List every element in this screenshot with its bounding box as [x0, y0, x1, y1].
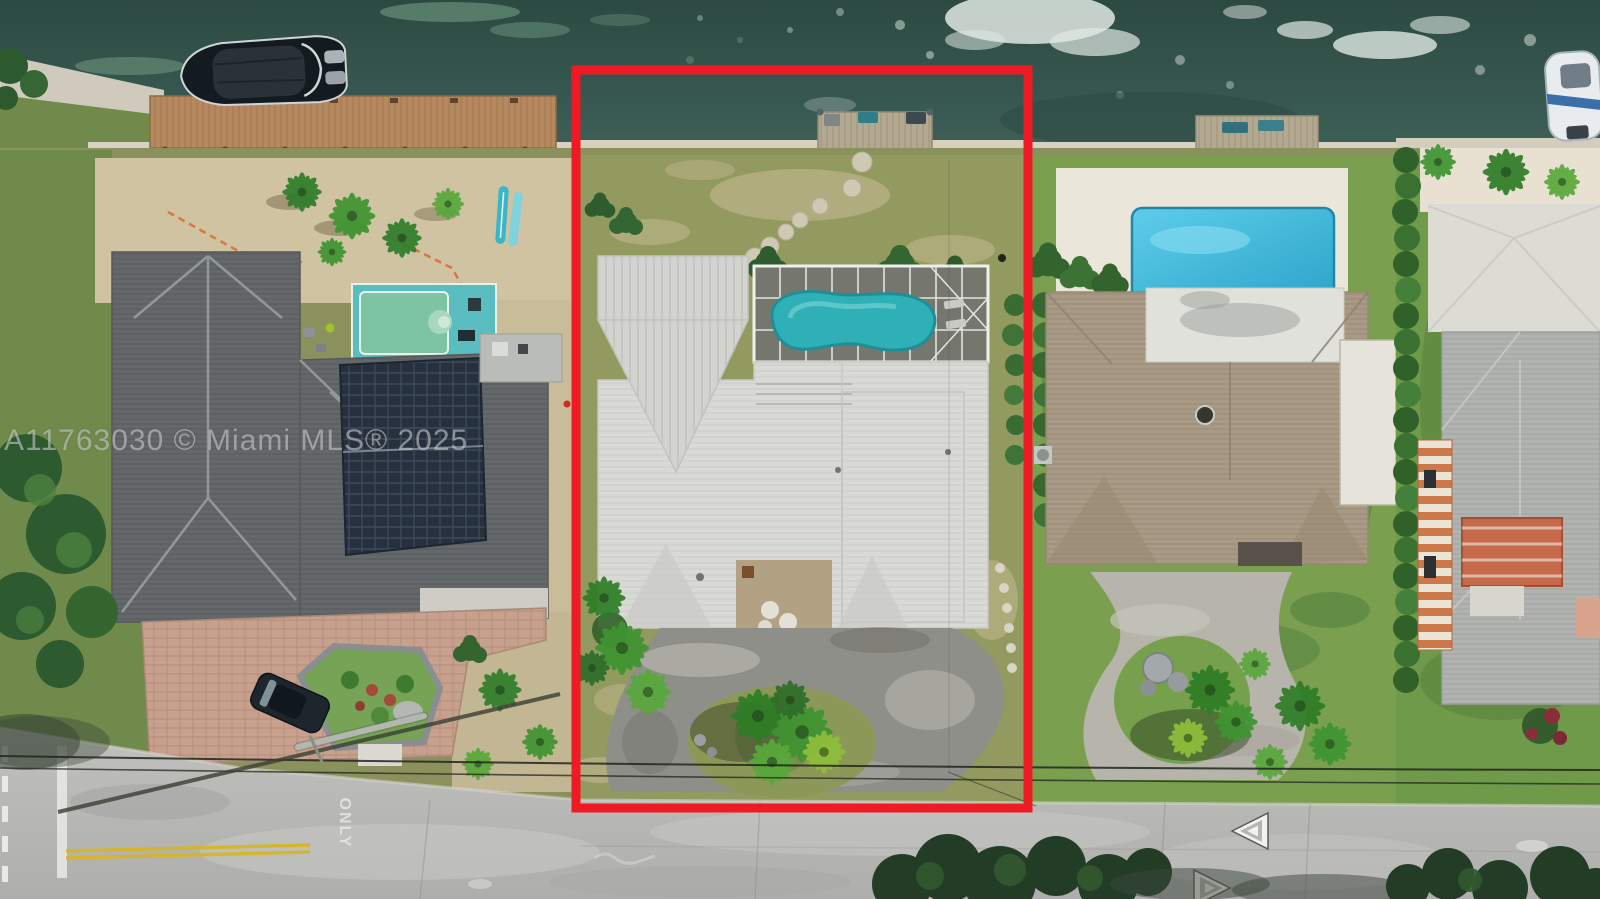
right-lot	[1026, 155, 1396, 810]
pool-enclosure	[754, 266, 988, 362]
red-marker-object	[564, 401, 571, 408]
left-lot	[0, 48, 576, 812]
ac-unit	[1034, 446, 1052, 464]
aerial-photo-canvas: ONLY	[0, 0, 1600, 899]
front-walk	[358, 744, 402, 766]
center-lot	[570, 152, 1028, 810]
far-right-lot	[1392, 144, 1600, 810]
right-house-roof	[1046, 288, 1396, 566]
right-entry-notch	[1238, 542, 1302, 566]
solar-panel-array	[340, 358, 486, 555]
boat-far-right	[1544, 50, 1600, 142]
roof-vent	[1196, 406, 1214, 424]
swimming-pool	[772, 292, 935, 350]
flat-utility-roof	[480, 334, 562, 382]
far-right-white-roof	[1428, 204, 1600, 332]
road-marking-only: ONLY	[336, 798, 353, 849]
